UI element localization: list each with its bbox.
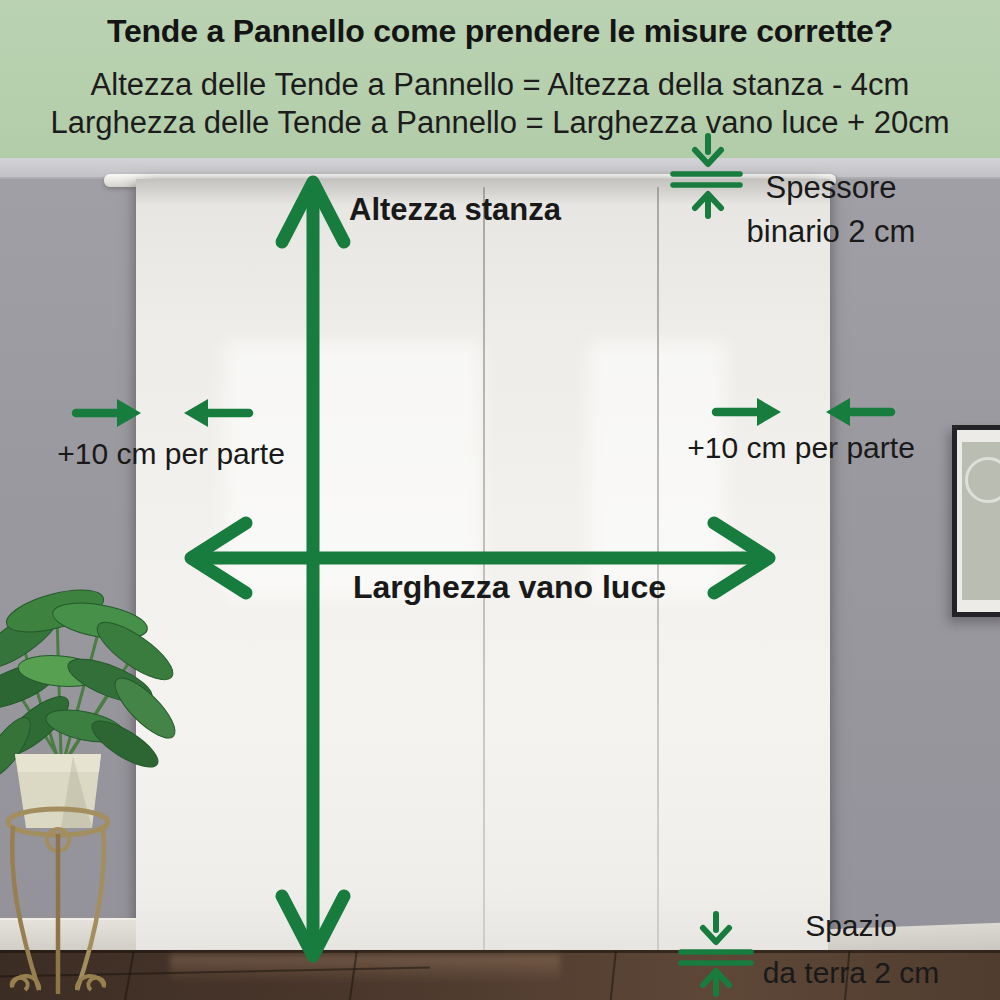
height-formula: Altezza delle Tende a Pannello = Altezza…	[0, 67, 1000, 103]
width-formula: Larghezza delle Tende a Pannello = Largh…	[0, 105, 1000, 141]
rail-thickness-label-line2: binario 2 cm	[732, 215, 930, 250]
floor-gap-label-line1: Spazio	[744, 909, 958, 943]
left-margin-label: +10 cm per parte	[34, 437, 308, 471]
panel-seam	[315, 187, 317, 952]
curtain-measurement-infographic: Tende a Pannello come prendere le misure…	[0, 0, 1000, 1000]
plant-stand	[8, 809, 108, 994]
plant-pot	[15, 754, 101, 828]
page-title: Tende a Pannello come prendere le misure…	[0, 13, 1000, 50]
floor-gap-label-line2: da terra 2 cm	[744, 956, 958, 990]
header-band: Tende a Pannello come prendere le misure…	[0, 0, 1000, 158]
panel-curtains	[136, 179, 830, 952]
picture-frame	[952, 425, 1000, 617]
opening-width-label: Larghezza vano luce	[353, 570, 666, 606]
right-margin-label: +10 cm per parte	[663, 431, 939, 465]
room-height-label: Altezza stanza	[349, 193, 561, 228]
tile-grout-line	[609, 951, 617, 1000]
potted-plant	[0, 576, 185, 1000]
rail-thickness-label-line1: Spessore	[732, 171, 930, 206]
